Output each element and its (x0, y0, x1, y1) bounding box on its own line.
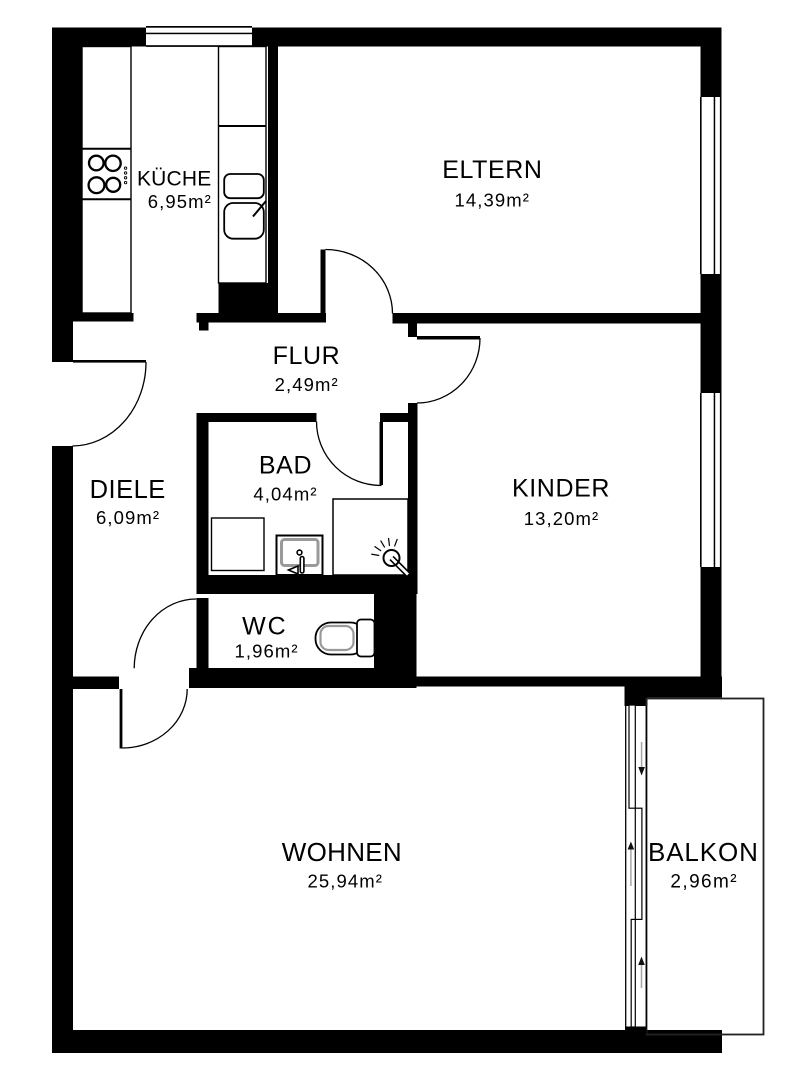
svg-text:2,96m²: 2,96m² (670, 872, 738, 893)
svg-text:13,20m²: 13,20m² (524, 508, 600, 529)
svg-text:WOHNEN: WOHNEN (282, 837, 402, 867)
svg-text:25,94m²: 25,94m² (308, 871, 384, 892)
svg-text:BALKON: BALKON (648, 837, 759, 867)
svg-text:BAD: BAD (259, 452, 312, 480)
svg-text:6,09m²: 6,09m² (96, 507, 160, 528)
svg-text:4,04m²: 4,04m² (253, 484, 317, 505)
svg-text:6,95m²: 6,95m² (148, 191, 212, 212)
svg-text:1,96m²: 1,96m² (235, 641, 299, 662)
svg-text:FLUR: FLUR (273, 342, 341, 370)
svg-text:KINDER: KINDER (512, 475, 610, 503)
svg-text:WC: WC (242, 613, 288, 641)
svg-text:2,49m²: 2,49m² (275, 374, 339, 395)
svg-text:14,39m²: 14,39m² (455, 189, 531, 210)
svg-text:KÜCHE: KÜCHE (137, 168, 212, 191)
svg-text:DIELE: DIELE (90, 476, 166, 504)
svg-text:ELTERN: ELTERN (442, 156, 542, 184)
